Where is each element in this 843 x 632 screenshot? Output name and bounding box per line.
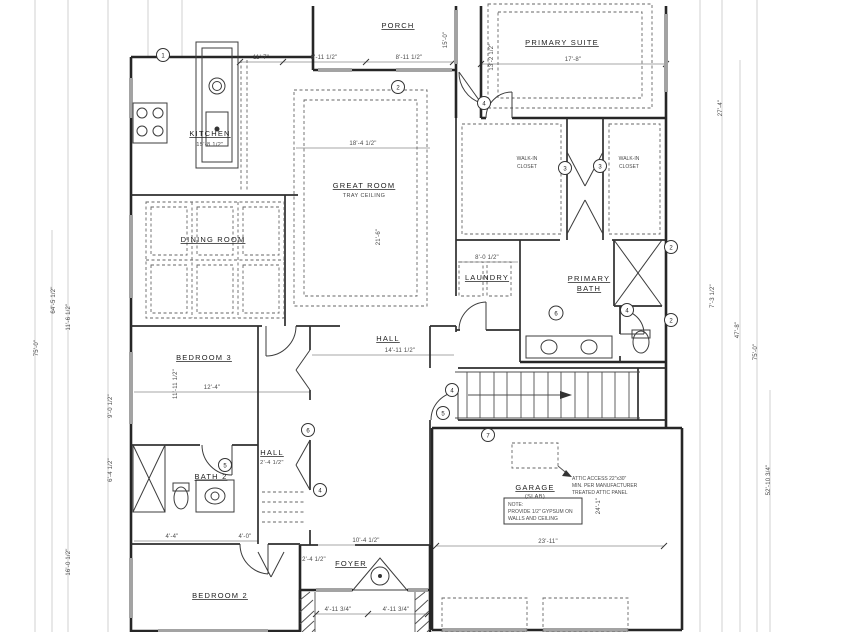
dim-right-b: 7'-3 1/2" xyxy=(710,284,716,308)
dim-bedroom3-width: 12'-4" xyxy=(204,385,220,391)
bath2-vanity xyxy=(196,480,234,512)
wic-right-label-1: WALK-IN xyxy=(619,156,640,162)
dimension-extension-lines xyxy=(35,0,770,632)
stairs-direction-arrow xyxy=(560,391,572,399)
dim-foyer-a: 2'-4 1/2" xyxy=(302,557,326,563)
room-label-garage: GARAGE xyxy=(515,483,554,492)
garage-sub-label: (SLAB) xyxy=(525,494,545,500)
attic-note-line3: TREATED ATTIC PANEL xyxy=(572,490,628,496)
dim-right-a: 27'-4" xyxy=(718,100,724,116)
room-label-porch: PORCH xyxy=(381,21,414,30)
wic-right-label-2: CLOSET xyxy=(619,164,639,170)
garage-note-line1: PROVIDE 1/2" GYPSUM ON xyxy=(508,509,573,515)
range xyxy=(133,103,167,143)
dimension-labels-vertical: 15'-0" 13'-2 1/2" 21'-6" 11'-11 1/2" 75'… xyxy=(34,32,772,576)
dim-top-c: 8'-11 1/2" xyxy=(396,55,423,61)
room-label-kitchen: KITCHEN xyxy=(189,129,230,138)
dim-stoop-a: 4'-11 3/4" xyxy=(325,607,352,613)
dim-top-b: 8'-11 1/2" xyxy=(311,55,338,61)
dim-stoop-b: 4'-11 3/4" xyxy=(383,607,410,613)
bedroom2-door xyxy=(240,544,268,574)
dim-hall-width: 14'-11 1/2" xyxy=(385,348,415,354)
kitchen-sink xyxy=(209,78,225,94)
dim-right-total: 75'-0" xyxy=(753,344,759,360)
dim-left-c: 9'-0 1/2" xyxy=(108,394,114,418)
garage-note-title: NOTE: xyxy=(508,502,523,508)
room-label-bedroom2: BEDROOM 2 xyxy=(192,591,248,600)
bath2-toilet xyxy=(174,487,188,509)
attic-access xyxy=(512,443,558,468)
garage-door-2 xyxy=(543,598,628,632)
ceiling-dashed-lines xyxy=(146,4,660,522)
dim-suite-width: 17'-8" xyxy=(565,57,581,63)
attic-note-line1: ATTIC ACCESS 22"x30" xyxy=(572,476,627,482)
dim-bath2-a: 4'-4" xyxy=(166,534,179,540)
room-label-foyer: FOYER xyxy=(335,559,367,568)
dim-right-c: 47'-8" xyxy=(735,322,741,338)
dim-bedroom3-height: 11'-11 1/2" xyxy=(173,369,179,399)
wic-left-label-2: CLOSET xyxy=(517,164,537,170)
dim-left-b: 11'-6 1/2" xyxy=(66,304,72,331)
dim-left-d: 6'-4 1/2" xyxy=(108,458,114,482)
dim-left-total: 75'-0" xyxy=(34,340,40,356)
attic-note-line2: MIN. PER MANUFACTURER xyxy=(572,483,638,489)
garage-door-outlines xyxy=(442,598,628,632)
bedroom3-door xyxy=(266,326,296,356)
floor-plan-sheet: 1 2 4 3 3 6 4 4 5 6 5 4 7 2 2 PORCH PRIM… xyxy=(0,0,843,632)
laundry-door xyxy=(459,302,486,330)
dim-porch-depth: 15'-0" xyxy=(443,32,449,48)
windows xyxy=(131,10,666,631)
floor-plan-drawing: 1 2 4 3 3 6 4 4 5 6 5 4 7 2 2 PORCH PRIM… xyxy=(0,0,843,632)
room-label-hall-upper: HALL xyxy=(376,334,400,343)
primary-vanity xyxy=(526,336,612,358)
dim-foyer-width: 10'-4 1/2" xyxy=(352,538,379,544)
fixtures xyxy=(133,42,662,524)
room-label-bath2: BATH 2 xyxy=(195,472,228,481)
dim-bath2-b: 4'-0" xyxy=(239,534,252,540)
dim-top-a: 11'-7" xyxy=(253,55,269,61)
room-label-primary-bath-1: PRIMARY xyxy=(568,274,610,283)
dim-great-room-width: 18'-4 1/2" xyxy=(349,141,376,147)
exterior-walls xyxy=(131,6,682,632)
room-label-great-room: GREAT ROOM xyxy=(333,181,396,190)
garage-note-line2: WALLS AND CEILING xyxy=(508,516,558,522)
dim-left-a: 64'-5 1/2" xyxy=(51,286,57,313)
room-label-primary-bath-2: BATH xyxy=(577,284,601,293)
room-label-dining-room: DINING ROOM xyxy=(181,235,246,244)
hall-lower-dim-label: 2'-4 1/2" xyxy=(260,460,284,466)
wic-left-label-1: WALK-IN xyxy=(517,156,538,162)
room-label-hall-lower: HALL xyxy=(260,448,284,457)
great-room-sub-label: TRAY CEILING xyxy=(343,193,386,199)
dim-great-room-height: 21'-6" xyxy=(376,229,382,245)
dim-right-d: 52'-10 3/4" xyxy=(766,465,772,496)
dim-left-e: 16'-0 1/2" xyxy=(66,548,72,575)
dim-garage-width: 23'-11" xyxy=(538,539,558,545)
stoop-hatch xyxy=(300,592,430,632)
garage-door-1 xyxy=(442,598,527,632)
kitchen-dim-label: 15'-8 1/2" xyxy=(196,142,223,148)
dim-laundry-width: 8'-0 1/2" xyxy=(475,255,499,261)
room-label-bedroom3: BEDROOM 3 xyxy=(176,353,232,362)
stairs xyxy=(455,372,640,418)
room-label-laundry: LAUNDRY xyxy=(465,273,509,282)
room-label-primary-suite: PRIMARY SUITE xyxy=(525,38,599,47)
dim-suite-side: 13'-2 1/2" xyxy=(489,43,495,70)
dim-garage-depth: 24'-1" xyxy=(596,498,602,514)
